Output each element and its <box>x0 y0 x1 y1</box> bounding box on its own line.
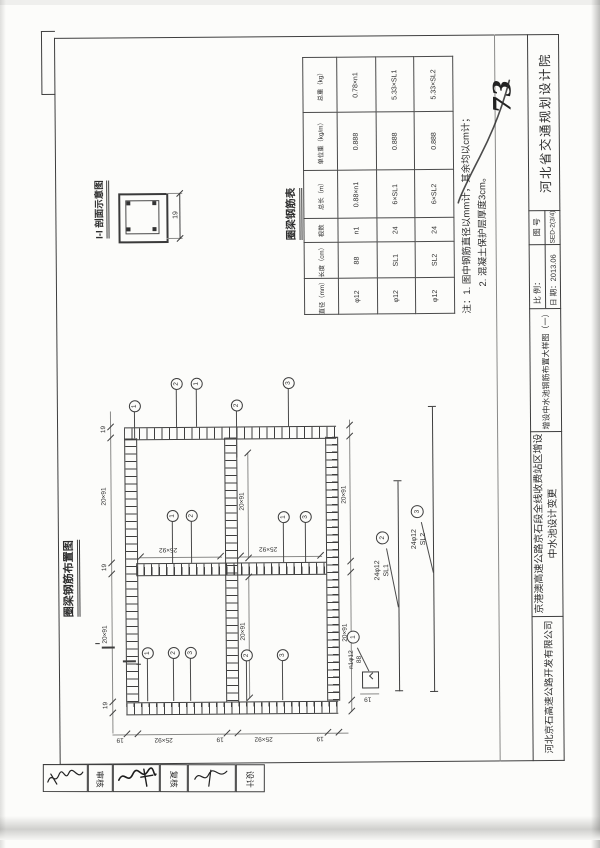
callout-leader <box>173 657 174 701</box>
paper-edge-shadow-right <box>591 0 600 848</box>
cell: 0.888 <box>414 112 453 170</box>
dim-label: 19 <box>116 736 123 743</box>
dim-tick <box>317 552 324 559</box>
section-dim-label: 19 <box>170 203 180 227</box>
dim-label: 20×91 <box>98 474 108 520</box>
paper-fold-shadow-bottom <box>0 816 600 840</box>
dim-label: 19 <box>364 695 371 702</box>
rebar-dot <box>152 201 156 205</box>
rebar-callout: 1 <box>347 631 360 644</box>
corner-notch-left <box>41 31 42 94</box>
signature-cell <box>43 764 88 792</box>
col-header: 长度（cm） <box>304 243 338 279</box>
frame-top <box>54 34 559 39</box>
callout-leader <box>147 657 148 701</box>
scale-label: 比 例： <box>529 244 546 308</box>
section-cut-label: I <box>135 658 144 670</box>
dim-line <box>360 693 379 694</box>
rebar-dot <box>126 227 130 231</box>
col-header: 直径（mm） <box>304 279 338 315</box>
bar-label: 24φ12 SL1 <box>371 545 395 595</box>
dim-label: 19 <box>100 695 110 715</box>
dim-label: 25×92 <box>154 736 172 743</box>
section-cut-tick <box>102 646 115 648</box>
wall-middle-horizontal <box>136 562 326 576</box>
cell: SL2 <box>415 242 454 278</box>
callout-leader <box>288 387 289 426</box>
title-block-institute: 河北省交通规划设计院 <box>527 38 560 208</box>
paper-edge-shadow-top <box>0 0 600 5</box>
cell: 0.78×n1 <box>337 57 376 112</box>
frame-left <box>54 38 61 765</box>
bar-end-tick <box>393 480 401 481</box>
rebar-callout: 2 <box>231 399 243 411</box>
company-name: 河北京石高速公路开发有限公司 <box>532 616 565 758</box>
handwritten-signature <box>189 765 235 791</box>
rebar-callout: 2 <box>186 510 198 522</box>
section-cut-label: I <box>94 638 103 650</box>
cell: SL1 <box>377 242 416 278</box>
handwritten-signature <box>114 765 159 791</box>
bar-end-tick <box>430 691 438 692</box>
callout-leader <box>283 521 284 562</box>
corner-notch-bottom <box>41 94 55 95</box>
signature-cell <box>113 764 160 792</box>
col-header: 根数 <box>304 219 338 243</box>
handwritten-swoosh <box>449 64 522 215</box>
rebar-table-title: 圈梁钢筋表 <box>282 180 303 248</box>
cell: 6×SL1 <box>376 170 415 218</box>
callout-leader <box>190 657 191 701</box>
rebar-callout: 2 <box>376 531 389 544</box>
dim-line-interior <box>240 556 322 557</box>
dim-line-interior <box>248 576 250 698</box>
callout-leader <box>282 659 283 700</box>
section-detail-title: I-I 剖面示意图 <box>90 161 111 257</box>
cell: 5.33×SL2 <box>414 57 453 112</box>
signature-label-cell: 设计 <box>236 764 265 792</box>
sheet-title: 增设中水池钢筋布置大样图（一） <box>529 308 562 431</box>
cell: φ12 <box>377 278 416 314</box>
scanned-drawing-page: I-I 剖面示意图 19 圈梁钢筋表 直径（mm） 长度（cm） 根数 总长 <box>0 0 600 848</box>
rebar-callout: 2 <box>168 647 180 659</box>
col-header: 总长（m） <box>304 171 338 219</box>
cell: 5.33×SL1 <box>375 57 414 112</box>
project-name: 京港澳高速公路京石段全线收费站区增设中水池设计变更 <box>530 431 563 616</box>
rebar-callout: 3 <box>277 649 289 661</box>
dim-label: 20×91 <box>338 472 348 518</box>
rebar-callout: 2 <box>171 378 183 390</box>
rebar-dot <box>152 227 156 231</box>
cell: 6×SL2 <box>415 170 454 218</box>
callout-leader <box>236 409 237 457</box>
dim-line-interior <box>140 557 222 558</box>
signature-strip: 审核 复核 设计 <box>43 764 265 794</box>
dim-tick <box>348 708 355 715</box>
bar-end-tick <box>395 690 403 691</box>
dim-label: 20×91 <box>99 612 109 658</box>
callout-leader <box>246 659 247 700</box>
callout-leader <box>191 520 192 563</box>
rebar-callout: 2 <box>241 649 253 661</box>
cell: 88 <box>338 242 377 278</box>
table-row: φ12 SL1 24 6×SL1 0.888 5.33×SL1 <box>375 57 416 314</box>
cell: 24 <box>415 218 454 242</box>
dim-label: 19 <box>316 735 323 742</box>
callout-leader <box>305 521 306 562</box>
dim-tick <box>245 554 252 561</box>
dim-label: 20×91 <box>236 478 246 524</box>
dim-line-interior <box>247 452 249 558</box>
drawing-no-label: 图 号 <box>528 210 544 244</box>
cell: n1 <box>338 218 377 242</box>
dim-label: 19 <box>98 420 108 440</box>
handwritten-signature <box>44 765 87 791</box>
bar-shape-sl1 <box>397 481 400 691</box>
signature-cell <box>188 764 236 792</box>
rebar-table-grid: 直径（mm） 长度（cm） 根数 总长（m） 单位重（kg/m） 总重（kg） … <box>302 56 455 315</box>
rebar-dot <box>126 201 130 205</box>
signature-label-cell: 复核 <box>160 764 188 792</box>
rebar-callout: 1 <box>129 400 141 412</box>
paper-edge-shadow-left <box>0 0 6 848</box>
wall-bottom <box>126 701 338 716</box>
bar-label: n1φ12 88 <box>346 643 368 675</box>
cell: 24 <box>377 218 416 242</box>
rebar-callout: 3 <box>283 377 295 389</box>
signature-label-cell: 审核 <box>88 764 113 792</box>
corner-notch-top <box>41 31 55 32</box>
col-header: 总重（kg） <box>303 58 337 113</box>
cell: 0.888 <box>376 112 415 170</box>
table-row: φ12 88 n1 0.88×n1 0.888 0.78×n1 <box>337 57 378 314</box>
rebar-callout: 3 <box>300 511 312 523</box>
callout-leader <box>196 388 197 427</box>
callout-leader <box>176 388 177 427</box>
rebar-callout: 1 <box>167 510 179 522</box>
cell: φ12 <box>338 278 377 314</box>
callout-leader <box>172 520 173 563</box>
dim-label: 19 <box>216 736 223 743</box>
cell: 0.888 <box>337 112 376 170</box>
plan-title: 圈梁钢筋布置图 <box>59 536 82 622</box>
drawing-sheet: I-I 剖面示意图 19 圈梁钢筋表 直径（mm） 长度（cm） 根数 总长 <box>0 0 600 848</box>
table-header-row: 直径（mm） 长度（cm） 根数 总长（m） 单位重（kg/m） 总重（kg） <box>303 58 339 315</box>
dim-label: 20×91 <box>237 608 247 654</box>
bar-label: 24φ12 SL2 <box>408 514 432 564</box>
rebar-callout: 1 <box>278 511 290 523</box>
col-header: 单位重（kg/m） <box>303 113 337 171</box>
callout-leader <box>134 410 135 438</box>
rebar-table: 直径（mm） 长度（cm） 根数 总长（m） 单位重（kg/m） 总重（kg） … <box>302 57 455 315</box>
dim-label: 25×92 <box>159 546 177 553</box>
dim-label: 19 <box>99 558 109 578</box>
cell: 0.88×n1 <box>338 170 377 218</box>
dim-tick <box>217 553 224 560</box>
bar-end-tick <box>428 406 436 407</box>
rebar-callout: 1 <box>191 378 203 390</box>
drawing-no-value: SED-2(3/4) <box>544 210 560 244</box>
rebar-callout: 3 <box>185 647 197 659</box>
date-line: 日 期：2013.06 <box>545 244 562 308</box>
dim-line-bottom <box>112 733 348 736</box>
dim-label: 25×92 <box>254 735 272 742</box>
dim-label: 25×92 <box>259 545 277 552</box>
cell: φ12 <box>416 278 455 314</box>
